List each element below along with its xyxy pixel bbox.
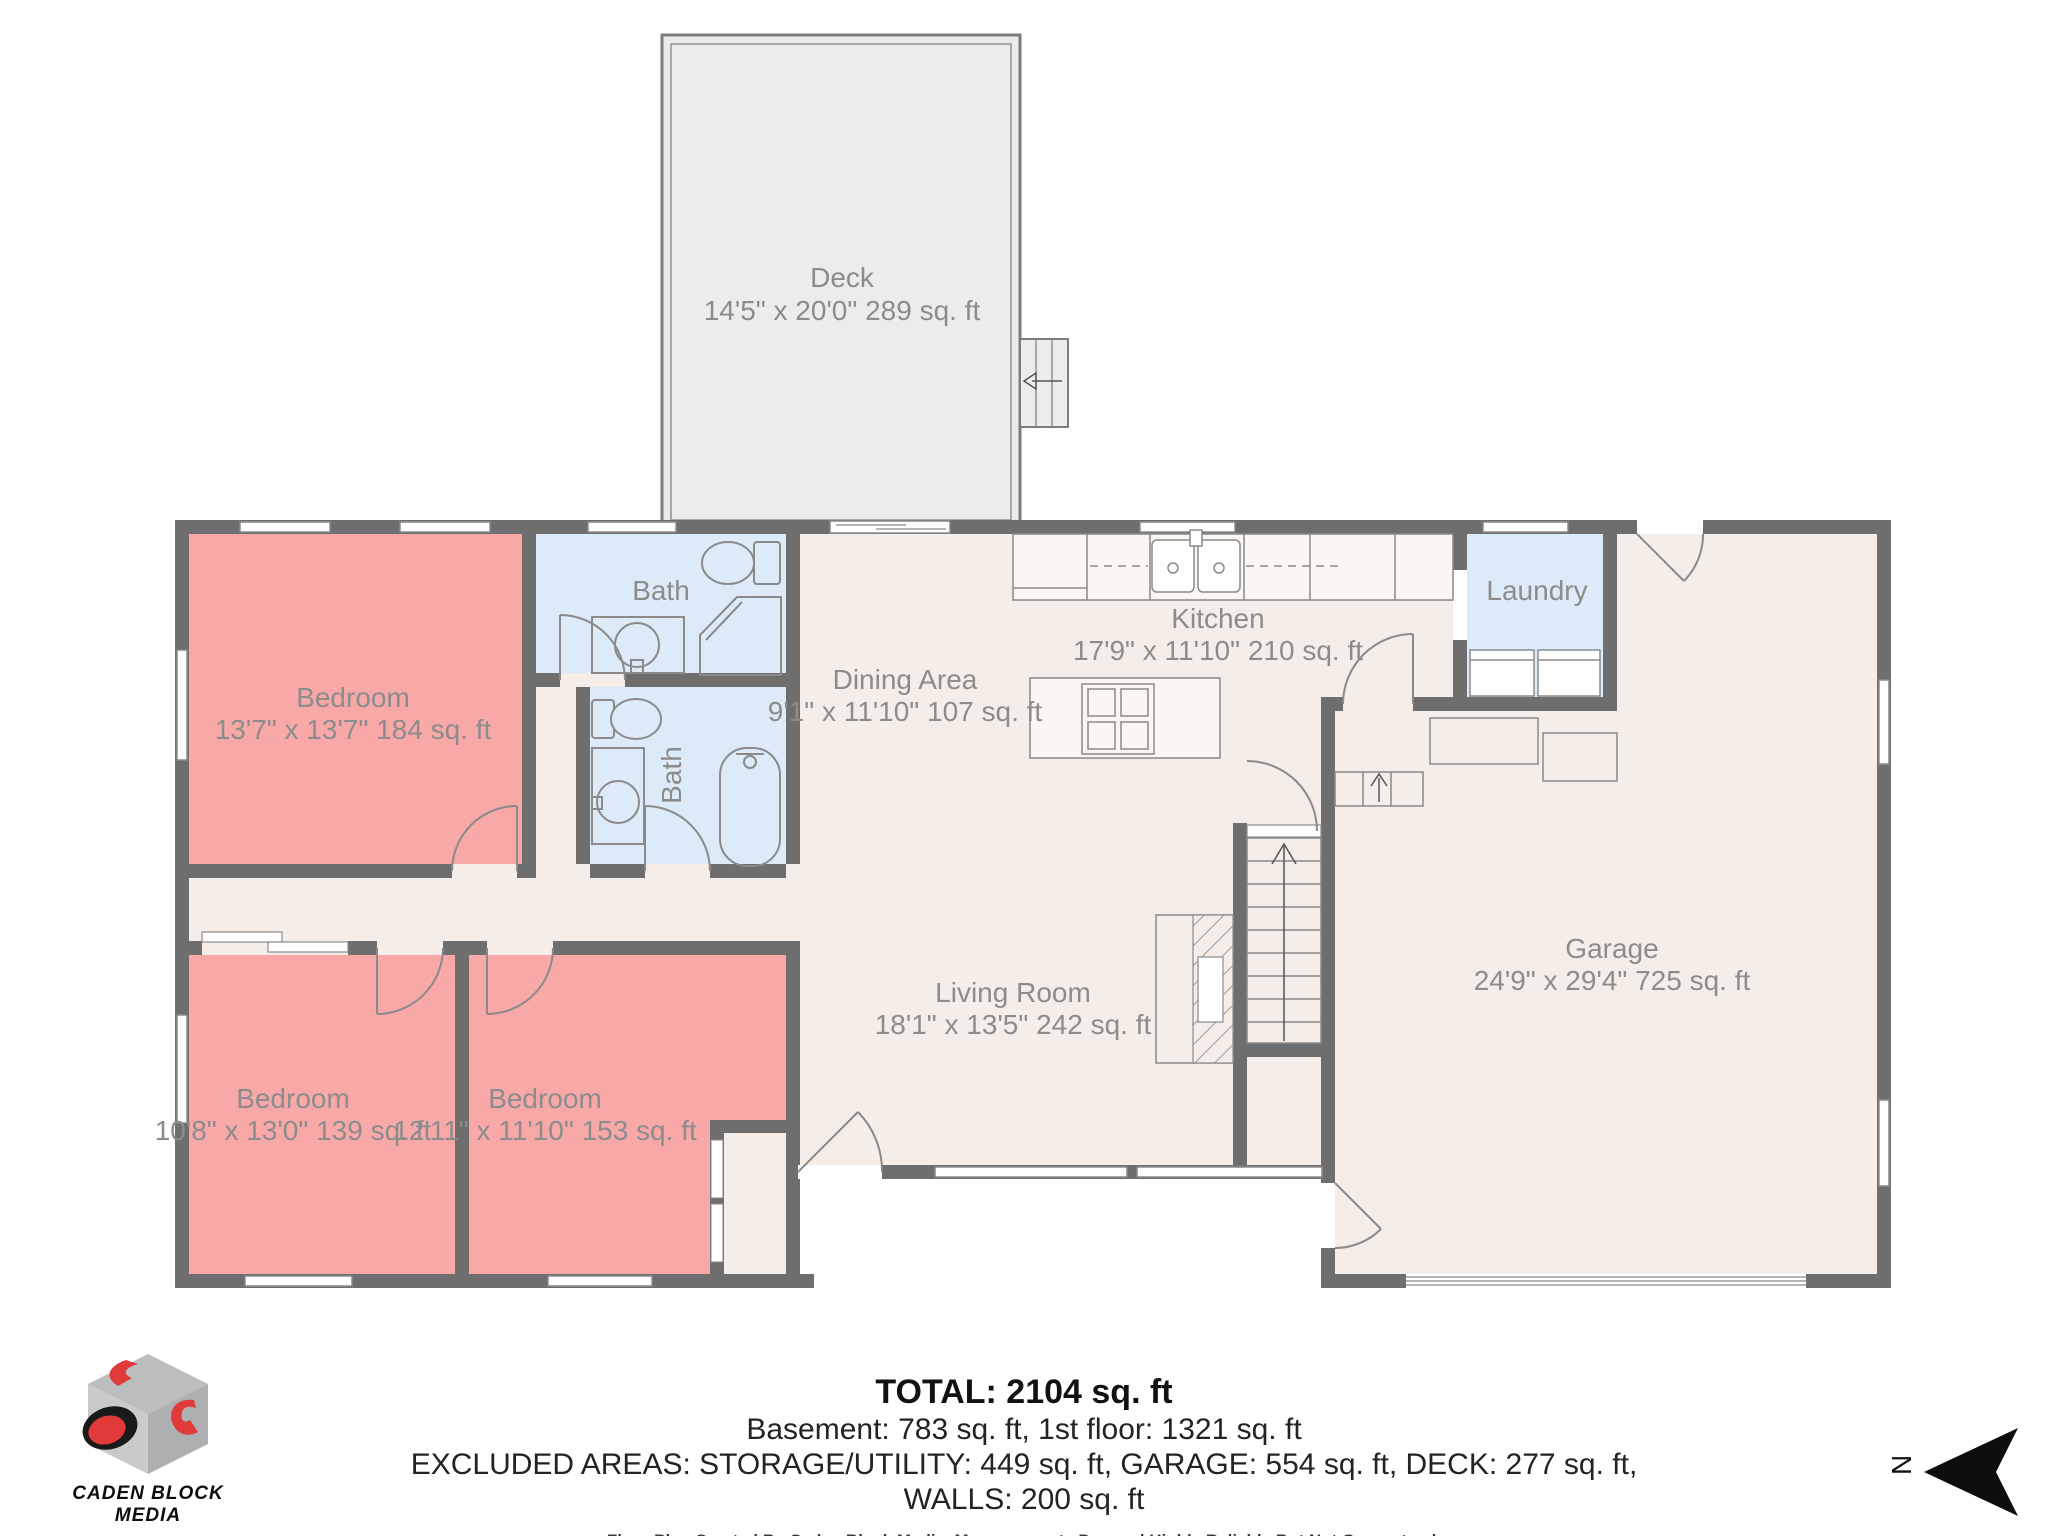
laundry-label: Laundry <box>1486 575 1587 606</box>
bedroom-mid-closet-floor <box>724 1133 786 1274</box>
wall-closet-top <box>710 1120 800 1133</box>
wall-left <box>175 520 189 1288</box>
floor-plan-drawing: Deck 14'5" x 20'0" 289 sq. ft Bedroom 13… <box>0 0 2048 1536</box>
garage-dims: 24'9" x 29'4" 725 sq. ft <box>1474 965 1751 996</box>
window <box>177 650 187 760</box>
kitchen-dims: 17'9" x 11'10" 210 sq. ft <box>1073 635 1363 666</box>
sliding-door <box>711 1140 723 1198</box>
north-letter: N <box>1890 1455 1917 1475</box>
window <box>1879 680 1889 764</box>
logo-line1: CADEN BLOCK <box>48 1483 248 1505</box>
toilet-bowl <box>702 542 754 584</box>
living-dims: 18'1" x 13'5" 242 sq. ft <box>875 1009 1152 1040</box>
window <box>548 1276 652 1286</box>
wall-stairs-left <box>1233 823 1247 1165</box>
kitchen-island <box>1030 678 1220 758</box>
bedroom-mid-label: Bedroom <box>488 1083 602 1114</box>
bedroom-top-dims: 13'7" x 13'7" 184 sq. ft <box>215 714 492 745</box>
deck-stairs <box>1020 339 1068 427</box>
dryer <box>1538 650 1600 696</box>
deck-slider-door <box>830 521 950 533</box>
area-summary: TOTAL: 2104 sq. ft Basement: 783 sq. ft,… <box>0 1372 2048 1536</box>
floor-plan-page: Deck 14'5" x 20'0" 289 sq. ft Bedroom 13… <box>0 0 2048 1536</box>
living-label: Living Room <box>935 977 1091 1008</box>
logo-line2: MEDIA <box>48 1505 248 1527</box>
washer <box>1470 650 1534 696</box>
window <box>245 1276 352 1286</box>
total-area: TOTAL: 2104 sq. ft <box>0 1372 2048 1412</box>
dining-label: Dining Area <box>833 664 978 695</box>
north-arrow: N <box>1890 1420 2040 1530</box>
window <box>1137 1167 1322 1177</box>
wall-area: WALLS: 200 sq. ft <box>0 1482 2048 1517</box>
sliding-door <box>268 942 348 952</box>
disclaimer-text: Floor Plan Created By Caden Block Media.… <box>0 1531 2048 1536</box>
deck-label: Deck <box>810 262 875 293</box>
bedroom-mid-dims: 12'11" x 11'10" 153 sq. ft <box>393 1115 697 1146</box>
main-staircase <box>1247 838 1321 1043</box>
dining-dims: 9'1" x 11'10" 107 sq. ft <box>768 696 1043 727</box>
window <box>400 522 490 532</box>
wall-garage-left <box>1321 697 1335 1183</box>
window <box>177 1015 187 1123</box>
wall-laundry-right <box>1603 534 1617 711</box>
bedroom-left-label: Bedroom <box>236 1083 350 1114</box>
floor-areas: Basement: 783 sq. ft, 1st floor: 1321 sq… <box>0 1412 2048 1447</box>
toilet-bowl <box>611 699 661 739</box>
sliding-door <box>711 1204 723 1262</box>
window <box>935 1167 1127 1177</box>
window <box>588 522 676 532</box>
wall-bath-lower-left <box>576 687 590 864</box>
bath-lower-label: Bath <box>656 746 687 804</box>
garage-label: Garage <box>1565 933 1658 964</box>
wall-laundry-bottom <box>1453 697 1617 711</box>
fireplace <box>1156 915 1233 1063</box>
bath-upper-label: Bath <box>632 575 690 606</box>
toilet-tank <box>754 542 780 584</box>
window <box>1140 522 1235 532</box>
wall-stairs-bottom <box>1247 1043 1321 1057</box>
window <box>240 522 330 532</box>
logo-cube-icon <box>48 1348 248 1478</box>
kitchen-faucet <box>1190 530 1202 546</box>
caden-block-media-logo: CADEN BLOCK MEDIA <box>48 1348 248 1527</box>
bedroom-top-label: Bedroom <box>296 682 410 713</box>
north-arrow-icon <box>1924 1428 2018 1516</box>
excluded-areas: EXCLUDED AREAS: STORAGE/UTILITY: 449 sq.… <box>0 1447 2048 1482</box>
window <box>1879 1100 1889 1186</box>
garage-door <box>1406 1274 1806 1288</box>
wall-bedroom-top-right <box>522 534 536 864</box>
bedroom-left-dims: 10'8" x 13'0" 139 sq. ft <box>155 1115 432 1146</box>
deck-dims: 14'5" x 20'0" 289 sq. ft <box>704 295 981 326</box>
sliding-door <box>202 932 282 942</box>
kitchen-label: Kitchen <box>1171 603 1264 634</box>
room-floors <box>189 534 1877 1274</box>
garage-upper-floor <box>1617 534 1877 1274</box>
window <box>1483 522 1568 532</box>
